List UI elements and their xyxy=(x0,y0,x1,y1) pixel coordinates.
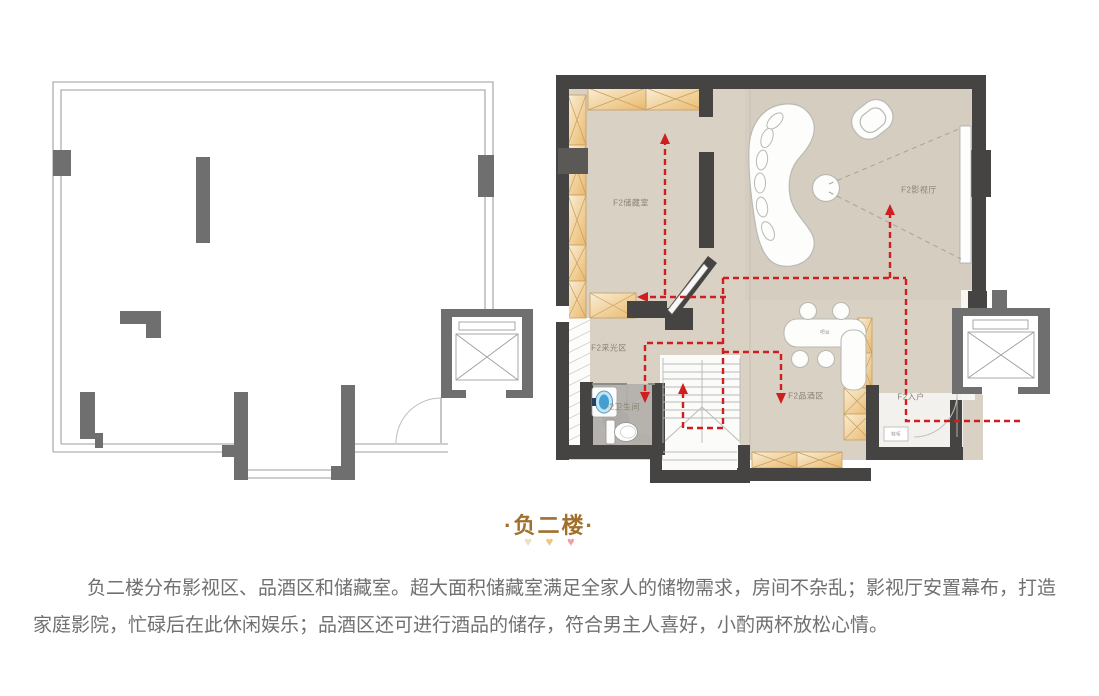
side-table xyxy=(813,175,840,202)
label-bar-counter: 吧台 xyxy=(820,329,830,335)
label-daylight-area: F2采光区 xyxy=(591,343,627,354)
left-wall-opening xyxy=(556,306,569,322)
faucet xyxy=(592,398,596,406)
bar-stool xyxy=(800,303,817,320)
bar-stool xyxy=(833,303,850,320)
heart-icon: ♥ xyxy=(524,534,532,549)
label-entry: F2入户 xyxy=(897,392,924,403)
hearts-decoration: ♥ ♥ ♥ xyxy=(0,535,1099,549)
left-plan-walls xyxy=(53,82,493,478)
left-plan-columns xyxy=(53,150,494,480)
left-entry-door xyxy=(396,398,441,443)
left-elevator xyxy=(441,309,533,399)
bar-stool xyxy=(818,351,835,368)
projection-screen xyxy=(960,126,971,263)
bar-stool xyxy=(792,351,809,368)
description-paragraph: 负二楼分布影视区、品酒区和储藏室。超大面积储藏室满足全家人的储物需求，房间不杂乱… xyxy=(33,570,1067,644)
heart-icon: ♥ xyxy=(546,534,554,549)
label-wine-area: F2品酒区 xyxy=(788,391,824,402)
page: F2储藏室 F2影视厅 F2采光区 F2卫生间 F2品酒区 F2入户 吧台 鞋柜… xyxy=(0,0,1099,696)
label-bathroom: F2卫生间 xyxy=(604,402,640,413)
heart-icon: ♥ xyxy=(567,534,575,549)
right-plan xyxy=(556,75,1050,483)
toilet-tank xyxy=(606,420,615,444)
left-plan xyxy=(53,82,533,480)
label-cinema-room: F2影视厅 xyxy=(901,185,937,196)
label-shoe-cabinet: 鞋柜 xyxy=(891,431,901,437)
label-storage-room: F2储藏室 xyxy=(613,198,649,209)
